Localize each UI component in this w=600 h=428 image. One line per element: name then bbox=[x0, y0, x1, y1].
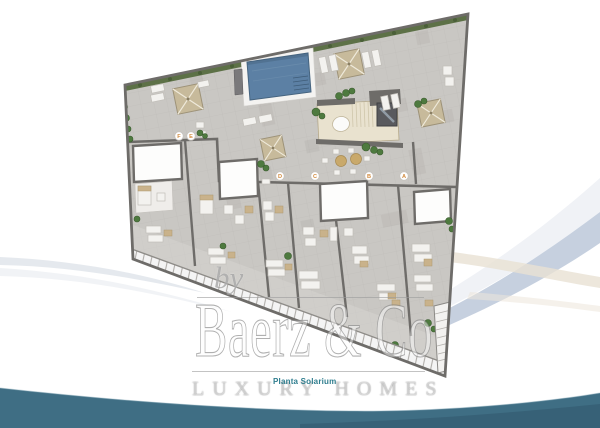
dining-table bbox=[336, 156, 347, 167]
dining-table bbox=[351, 154, 362, 165]
unit-marker-c: C bbox=[313, 174, 317, 180]
pool-shower-wall bbox=[234, 69, 243, 95]
watermark-divider-top bbox=[197, 297, 424, 298]
unit-marker-d: D bbox=[278, 174, 282, 180]
unit-marker-a: A bbox=[402, 174, 406, 180]
parasol-icon bbox=[260, 135, 286, 161]
unit-marker-e: E bbox=[189, 134, 193, 140]
pool bbox=[234, 48, 316, 106]
bottom-wave bbox=[0, 388, 600, 428]
unit-marker-f: F bbox=[177, 134, 181, 140]
floor-plan-svg: F E D C B A bbox=[0, 0, 600, 428]
unit-marker-b: B bbox=[367, 174, 371, 180]
watermark-divider-bottom bbox=[192, 371, 425, 372]
brochure-page: F E D C B A by Baerz & Co LUXURY HOMES P… bbox=[0, 0, 600, 428]
building-plan bbox=[118, 9, 473, 377]
parasol-icon bbox=[334, 49, 365, 80]
